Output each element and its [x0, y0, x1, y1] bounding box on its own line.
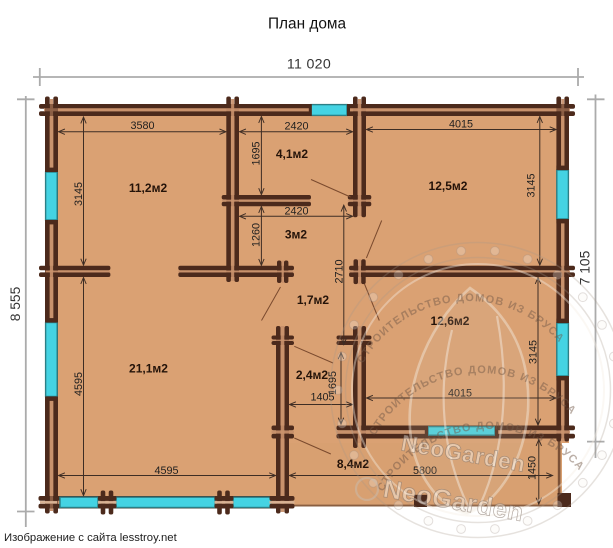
svg-text:2420: 2420: [284, 120, 308, 132]
svg-text:4595: 4595: [154, 465, 178, 477]
svg-text:1,7м2: 1,7м2: [297, 293, 330, 307]
svg-text:3м2: 3м2: [285, 228, 308, 242]
svg-text:1450: 1450: [527, 456, 539, 480]
svg-text:8 555: 8 555: [8, 286, 23, 321]
svg-text:4,1м2: 4,1м2: [276, 147, 309, 161]
svg-text:2710: 2710: [333, 259, 345, 283]
svg-text:План дома: План дома: [268, 15, 346, 32]
svg-text:3145: 3145: [73, 182, 85, 206]
svg-text:12,5м2: 12,5м2: [429, 179, 468, 193]
svg-text:1695: 1695: [251, 141, 263, 165]
svg-text:1260: 1260: [251, 223, 263, 247]
svg-text:2,4м2: 2,4м2: [296, 368, 329, 382]
svg-text:21,1м2: 21,1м2: [129, 362, 168, 376]
svg-text:11 020: 11 020: [287, 56, 331, 72]
svg-text:2420: 2420: [284, 205, 308, 217]
svg-text:7 105: 7 105: [577, 250, 592, 285]
svg-text:3145: 3145: [526, 173, 538, 197]
svg-text:3145: 3145: [528, 340, 540, 364]
svg-text:Изображение с сайта lesstroy.n: Изображение с сайта lesstroy.net: [4, 532, 178, 544]
svg-text:11,2м2: 11,2м2: [129, 181, 168, 195]
svg-text:3580: 3580: [130, 120, 154, 132]
svg-text:4595: 4595: [73, 372, 85, 396]
svg-text:4015: 4015: [449, 118, 473, 130]
